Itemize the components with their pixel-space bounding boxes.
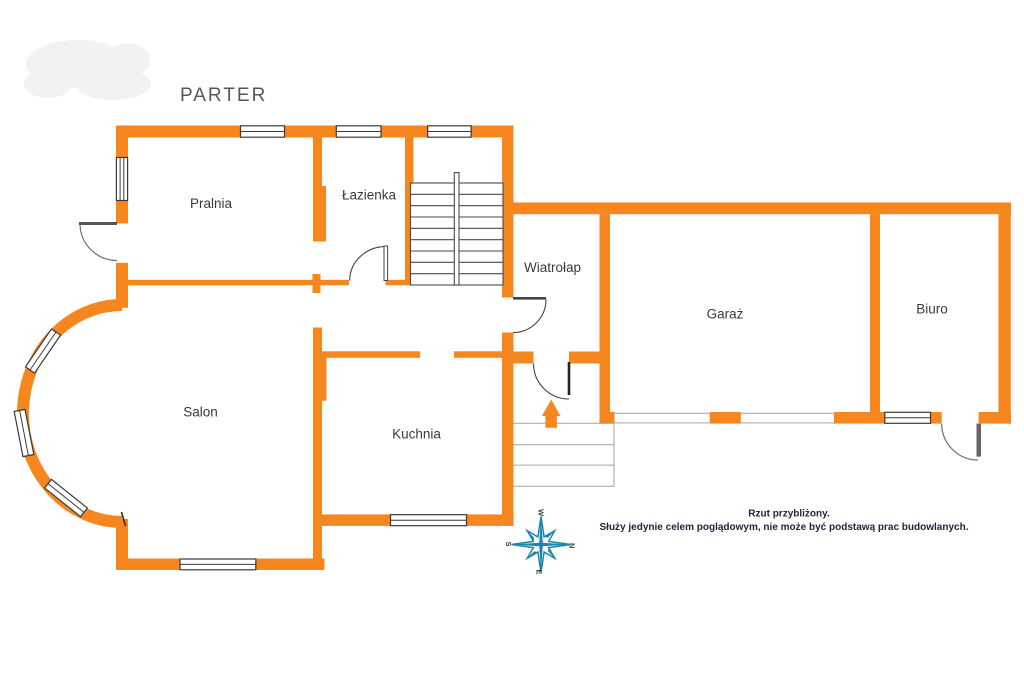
svg-text:N: N bbox=[568, 543, 577, 548]
svg-text:Rzut przybliżony.: Rzut przybliżony. bbox=[748, 509, 830, 520]
svg-text:S: S bbox=[504, 542, 513, 547]
svg-text:Łazienka: Łazienka bbox=[342, 188, 397, 203]
svg-text:Biuro: Biuro bbox=[916, 302, 948, 317]
svg-text:E: E bbox=[535, 570, 544, 575]
svg-text:Garaż: Garaż bbox=[707, 307, 744, 322]
svg-text:PARTER: PARTER bbox=[180, 85, 267, 106]
svg-text:Kuchnia: Kuchnia bbox=[392, 427, 441, 442]
svg-text:W: W bbox=[537, 509, 546, 517]
svg-text:Służy jedynie celem poglądowym: Służy jedynie celem poglądowym, nie może… bbox=[600, 522, 969, 533]
svg-text:Wiatrołap: Wiatrołap bbox=[524, 260, 581, 275]
svg-text:Pralnia: Pralnia bbox=[190, 196, 233, 211]
svg-text:Salon: Salon bbox=[183, 405, 218, 420]
